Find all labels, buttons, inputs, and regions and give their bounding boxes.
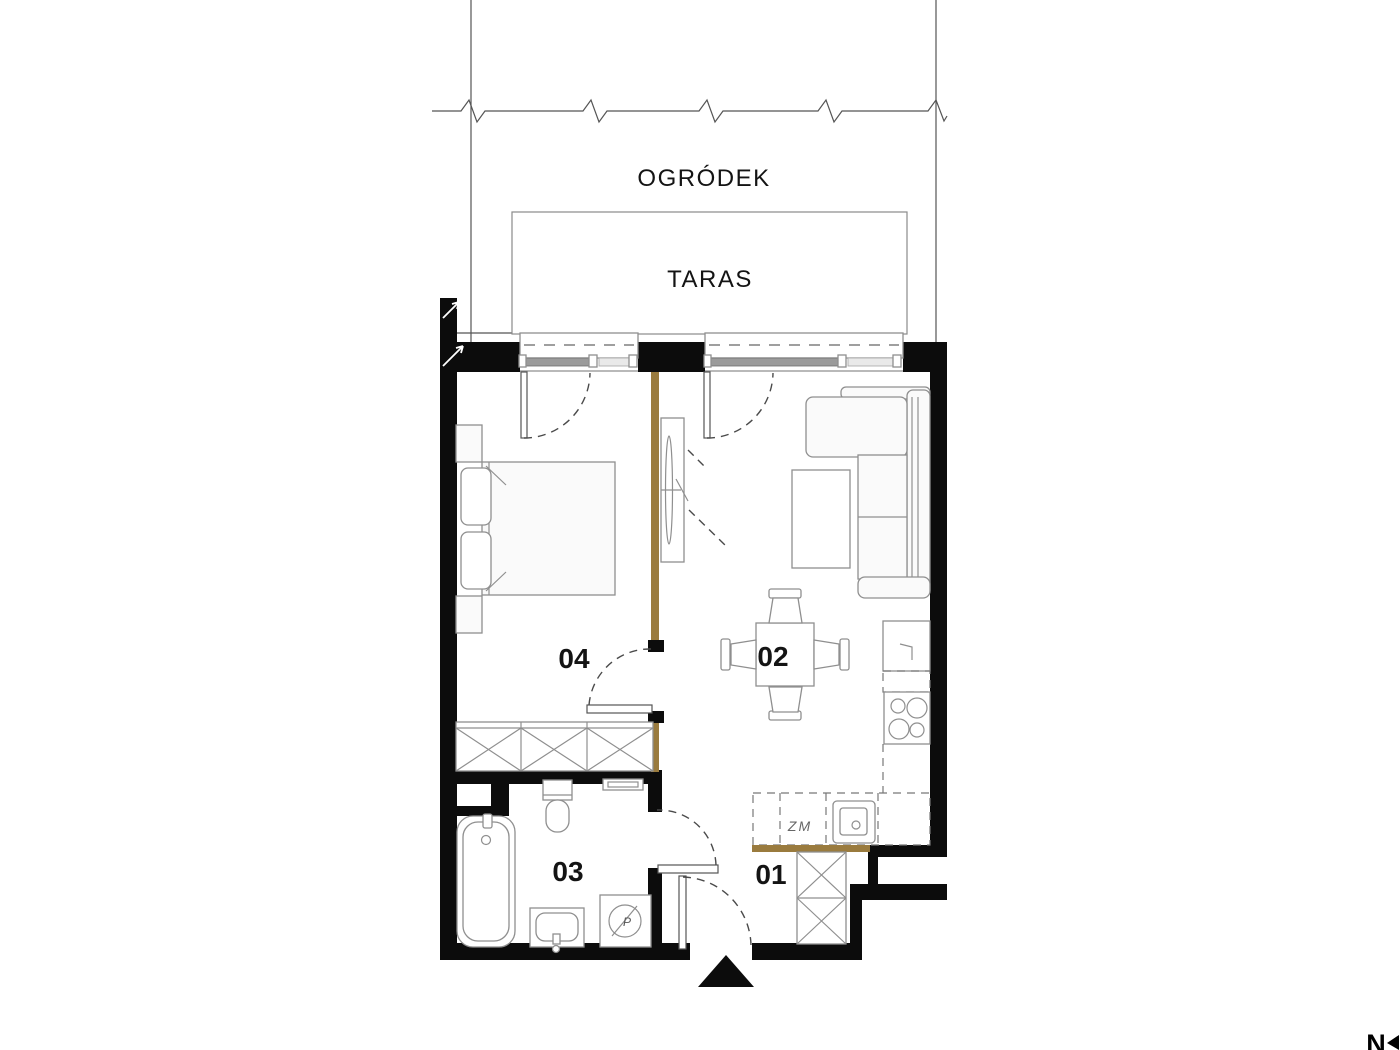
door-bedroom <box>587 649 652 713</box>
toilet <box>543 780 572 832</box>
window-bedroom <box>519 333 638 371</box>
room-label-bathroom: 03 <box>552 856 583 887</box>
dishwasher-label: ZM <box>787 818 812 834</box>
washbasin <box>530 908 584 953</box>
washing-machine-label: P <box>623 915 631 929</box>
balcony-door-bedroom <box>521 372 590 438</box>
room-label-bedroom: 04 <box>558 643 590 674</box>
north-arrow-icon <box>1387 1035 1399 1050</box>
counter-front-accent <box>752 845 870 852</box>
shelf-radiator <box>603 779 643 790</box>
bed <box>456 425 615 633</box>
balcony-door-living <box>704 372 773 438</box>
terrace-label: TARAS <box>667 266 753 293</box>
north-label: N <box>1366 1029 1386 1050</box>
room-label-living: 02 <box>757 641 788 672</box>
floor-plan-drawing: OGRÓDEK TARAS <box>0 0 1400 1050</box>
north-indicator: N <box>1366 1029 1399 1050</box>
garden-label: OGRÓDEK <box>637 165 770 192</box>
floor-plan-page: OGRÓDEK TARAS <box>0 0 1400 1050</box>
tv-panel <box>661 418 726 562</box>
wardrobe-hall <box>797 852 846 944</box>
window-living <box>704 333 903 371</box>
fence-break-line <box>432 100 947 122</box>
room-label-hall: 01 <box>755 859 786 890</box>
wardrobe-bedroom <box>456 722 653 771</box>
bathtub <box>457 814 515 947</box>
door-bathroom <box>657 810 718 873</box>
coffee-table <box>792 470 850 568</box>
entrance-door <box>679 876 754 987</box>
entrance-arrow <box>698 955 754 987</box>
kitchen-sink <box>833 801 875 843</box>
